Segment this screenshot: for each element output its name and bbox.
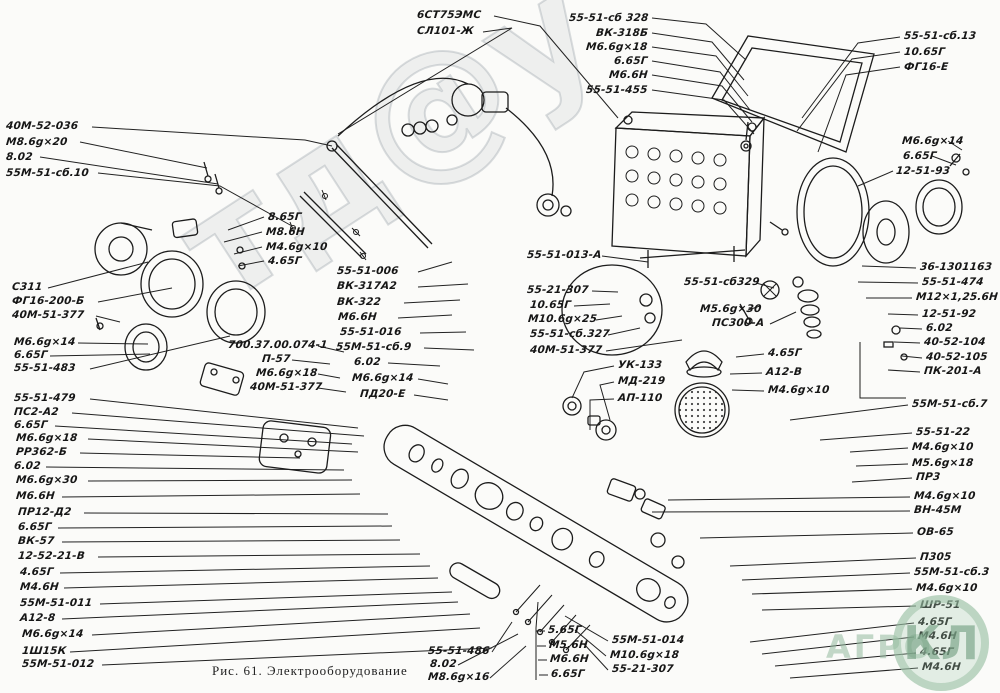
leader-line	[820, 433, 912, 440]
part-label: М6.6Н	[15, 490, 55, 502]
part-label: 40М-51-377	[249, 381, 322, 393]
leader-line	[62, 494, 360, 497]
leader-line	[894, 342, 920, 343]
part-label: ВК-57	[17, 535, 55, 547]
parts-diagram-page: тд@у	[0, 0, 1000, 693]
leader-line	[62, 540, 400, 542]
part-label: 55-51-483	[13, 362, 76, 374]
part-label: М4.6g×10	[913, 490, 976, 502]
part-label: 55-51-006	[336, 265, 399, 277]
leader-line	[418, 284, 468, 287]
part-label: 4.65Г	[19, 566, 54, 578]
diagram-drawing	[0, 0, 1000, 693]
leader-line	[652, 90, 754, 134]
bracket-plate-drawing	[199, 362, 244, 396]
leader-line	[46, 467, 344, 470]
part-label: М6.6g×14	[901, 135, 964, 147]
watermark-agro-badge-letters: КЛ	[903, 616, 979, 670]
leader-lines-layer	[40, 16, 962, 678]
part-label: 55М-51-011	[19, 597, 92, 609]
part-label: М4.6g×10	[915, 582, 978, 594]
leader-line	[574, 304, 610, 306]
part-label: 55-51-474	[921, 276, 984, 288]
part-label: 55М-51-012	[21, 658, 94, 670]
leader-line	[668, 497, 910, 500]
part-label: 55-51-013-А	[526, 249, 602, 261]
part-label: РР362-Б	[15, 446, 67, 458]
part-label: 55-51-22	[915, 426, 970, 438]
leader-line	[888, 370, 920, 372]
part-label: 40-52-105	[925, 351, 988, 363]
leader-line	[424, 348, 474, 350]
leader-line	[64, 578, 438, 588]
leader-line	[862, 266, 916, 268]
part-label: 55-51-016	[339, 326, 402, 338]
part-label: П-57	[261, 353, 291, 365]
part-label: 6.02	[925, 322, 953, 334]
leader-line	[88, 439, 358, 452]
leader-line	[596, 316, 622, 320]
part-label: 55М-51-014	[611, 634, 684, 646]
part-label: 6СТ75ЭМС	[416, 9, 481, 21]
part-label: ПС2-А2	[13, 406, 59, 418]
part-label: 40М-51-377	[529, 344, 602, 356]
part-label: 40М-51-377	[11, 309, 84, 321]
part-label: 40-52-104	[923, 336, 986, 348]
part-label: ПС300-А	[711, 317, 764, 329]
part-label: П305	[919, 551, 952, 563]
leader-line	[592, 291, 618, 292]
leader-line	[732, 390, 764, 391]
part-label: М8.6g×20	[5, 136, 68, 148]
leader-line	[58, 526, 392, 528]
leader-line	[98, 554, 420, 557]
part-label: 6.65Г	[550, 668, 585, 680]
part-label: С311	[11, 281, 42, 293]
leader-line	[790, 668, 918, 678]
watermark-agro-badge: КЛ	[893, 595, 989, 691]
leader-line	[88, 480, 352, 481]
leader-line	[902, 356, 922, 358]
leader-line	[100, 592, 452, 604]
part-label: 12-52-21-В	[17, 550, 85, 562]
leader-line	[900, 328, 922, 329]
part-label: М4.6g×10	[767, 384, 830, 396]
leader-line	[856, 464, 908, 466]
sensor-cap-drawing	[740, 277, 907, 360]
part-label: М4.6g×10	[265, 241, 328, 253]
leader-line	[80, 453, 300, 458]
leader-line	[600, 382, 614, 420]
part-label: М6.6g×14	[21, 628, 84, 640]
part-label: М4.6g×10	[911, 441, 974, 453]
leader-line	[730, 373, 762, 374]
part-label: ФГ16-200-Б	[11, 295, 84, 307]
leader-line	[84, 513, 388, 514]
leader-line	[78, 343, 148, 344]
part-label: 6.65Г	[614, 55, 649, 67]
part-label: 55М-51-сб.3	[913, 566, 990, 578]
leader-line	[60, 566, 430, 573]
part-label: 36-1301163	[919, 261, 992, 273]
leader-line	[292, 360, 330, 364]
leader-line	[96, 316, 120, 322]
figure-caption: Рис. 61. Электрооборудование	[212, 663, 408, 679]
leader-line	[62, 602, 458, 619]
leader-line	[404, 300, 460, 303]
part-label: 4.65Г	[267, 255, 302, 267]
gauge-drawing	[675, 351, 729, 437]
part-label: 4.65Г	[767, 347, 802, 359]
part-label: 55-21-307	[526, 284, 589, 296]
part-label: М6.6g×14	[351, 372, 414, 384]
part-label: М4.6Н	[19, 581, 59, 593]
leader-line	[420, 332, 466, 333]
leader-line	[700, 533, 913, 538]
steering-cowl-drawing	[562, 265, 662, 355]
leader-line	[770, 312, 796, 324]
leader-line	[752, 589, 912, 594]
leader-line	[492, 622, 512, 652]
part-label: М5.6Н	[548, 639, 588, 651]
part-label: А12-8	[19, 612, 55, 624]
part-label: 700.37.00.074-1	[227, 339, 328, 351]
dashboard-panel-drawing	[377, 418, 696, 653]
part-label: 8.02	[429, 658, 457, 670]
leader-line	[90, 399, 358, 428]
part-label: 6.65Г	[13, 419, 48, 431]
headlamp-drawing	[96, 247, 265, 370]
part-label: 6.65Г	[902, 150, 937, 162]
wiper-drawing	[300, 78, 571, 258]
part-label: М12×1,25.6Н	[915, 291, 998, 303]
part-label: М5.6g×18	[911, 457, 974, 469]
part-label: М6.6Н	[549, 653, 589, 665]
part-label: М6.6g×18	[586, 41, 649, 53]
headlight-rim-drawing	[770, 158, 869, 266]
part-label: М5.6g×30	[699, 303, 762, 315]
leader-line	[742, 573, 910, 580]
part-label: 55-51-479	[13, 392, 76, 404]
part-label: 55М-51-сб.9	[335, 341, 412, 353]
part-label: М6.6g×18	[255, 367, 318, 379]
part-label: М6.6g×18	[15, 432, 78, 444]
part-label: ВК-322	[336, 296, 381, 308]
leader-line	[72, 413, 364, 436]
part-label: А12-В	[765, 366, 802, 378]
part-label: ПР12-Д2	[17, 506, 72, 518]
leader-line	[850, 448, 908, 452]
part-label: 1Ш15К	[21, 645, 67, 657]
part-label: 10.65Г	[529, 299, 571, 311]
leader-line	[48, 262, 148, 288]
part-label: МД-219	[617, 375, 665, 387]
leader-line	[318, 374, 340, 378]
leader-line	[224, 232, 262, 242]
part-label: М6.6Н	[337, 311, 377, 323]
leader-line	[602, 256, 648, 262]
part-label: 55-51-сб329	[683, 276, 760, 288]
part-label: М6.6Н	[609, 69, 649, 81]
leader-line	[858, 282, 918, 283]
leader-line	[790, 405, 908, 420]
leader-line	[70, 628, 480, 652]
part-label: 12-51-93	[895, 165, 950, 177]
leader-line	[98, 288, 172, 302]
leader-line	[888, 314, 918, 315]
part-label: 6.65Г	[13, 349, 48, 361]
part-label: М6.6g×30	[15, 474, 78, 486]
leader-line	[797, 52, 900, 131]
leader-line	[80, 142, 207, 168]
part-label: 10.65Г	[903, 46, 945, 58]
part-label: 6.02	[353, 356, 381, 368]
leader-line	[730, 558, 916, 566]
part-label: ПД20-Е	[359, 388, 406, 400]
leader-line	[572, 366, 614, 398]
part-label: 12-51-92	[921, 308, 976, 320]
part-label: 55-51-сб.13	[903, 30, 976, 42]
part-label: М8.6Н	[265, 226, 305, 238]
part-label: М10.6g×25	[527, 313, 597, 325]
leader-line	[736, 354, 764, 357]
leader-line	[490, 646, 526, 678]
part-label: СЛ101-Ж	[416, 25, 474, 37]
leader-line	[418, 262, 452, 272]
part-label: 40М-52-036	[5, 120, 78, 132]
part-label: 5.65Г	[547, 624, 582, 636]
leader-line	[414, 395, 448, 400]
leader-line	[318, 388, 346, 392]
part-label: ВН-45М	[913, 504, 961, 516]
leader-line	[608, 328, 640, 335]
leader-line	[418, 379, 448, 384]
part-label: 55-51-сб 328	[568, 12, 649, 24]
leader-line	[652, 511, 910, 512]
part-label: АП-110	[617, 392, 662, 404]
part-label: ВК-317А2	[336, 280, 397, 292]
leader-line	[852, 478, 912, 482]
part-label: 8.02	[5, 151, 33, 163]
part-label: УК-133	[617, 359, 662, 371]
battery-drawing	[612, 112, 764, 268]
leader-line	[92, 127, 332, 146]
part-label: 55-21-307	[611, 663, 674, 675]
leader-line	[606, 340, 682, 351]
part-label: ФГ16-Е	[903, 61, 949, 73]
part-label: М10.6g×18	[609, 649, 679, 661]
leader-line	[388, 363, 440, 366]
part-label: М8.6g×16	[427, 671, 490, 683]
part-label: ПР3	[915, 471, 940, 483]
part-label: 55-51-486	[427, 645, 490, 657]
part-label: 55М-51-сб.7	[911, 398, 988, 410]
part-label: ПК-201-А	[923, 365, 982, 377]
part-label: 6.65Г	[17, 521, 52, 533]
part-label: 55М-51-сб.10	[5, 167, 89, 179]
part-label: 8.65Г	[267, 211, 302, 223]
part-label: 55-51-сб.327	[529, 328, 610, 340]
leader-line	[762, 606, 916, 610]
part-label: 55-51-455	[586, 84, 649, 96]
part-label: М6.6g×14	[13, 336, 76, 348]
part-label: ОВ-65	[916, 526, 954, 538]
part-label: ВК-318Б	[595, 27, 648, 39]
leader-line	[228, 217, 264, 230]
leader-line	[398, 315, 452, 318]
part-label: 6.02	[13, 460, 41, 472]
